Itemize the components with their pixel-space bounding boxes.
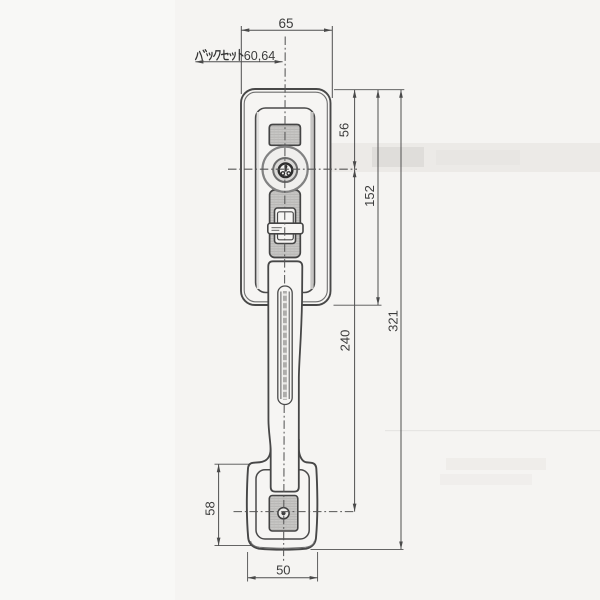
svg-text:60,64: 60,64 [244, 49, 276, 63]
svg-text:152: 152 [362, 185, 377, 207]
svg-text:240: 240 [338, 330, 353, 352]
svg-text:65: 65 [278, 16, 293, 31]
svg-text:58: 58 [202, 501, 217, 515]
svg-text:56: 56 [337, 123, 352, 137]
svg-text:321: 321 [386, 310, 401, 332]
svg-text:50: 50 [276, 562, 290, 577]
